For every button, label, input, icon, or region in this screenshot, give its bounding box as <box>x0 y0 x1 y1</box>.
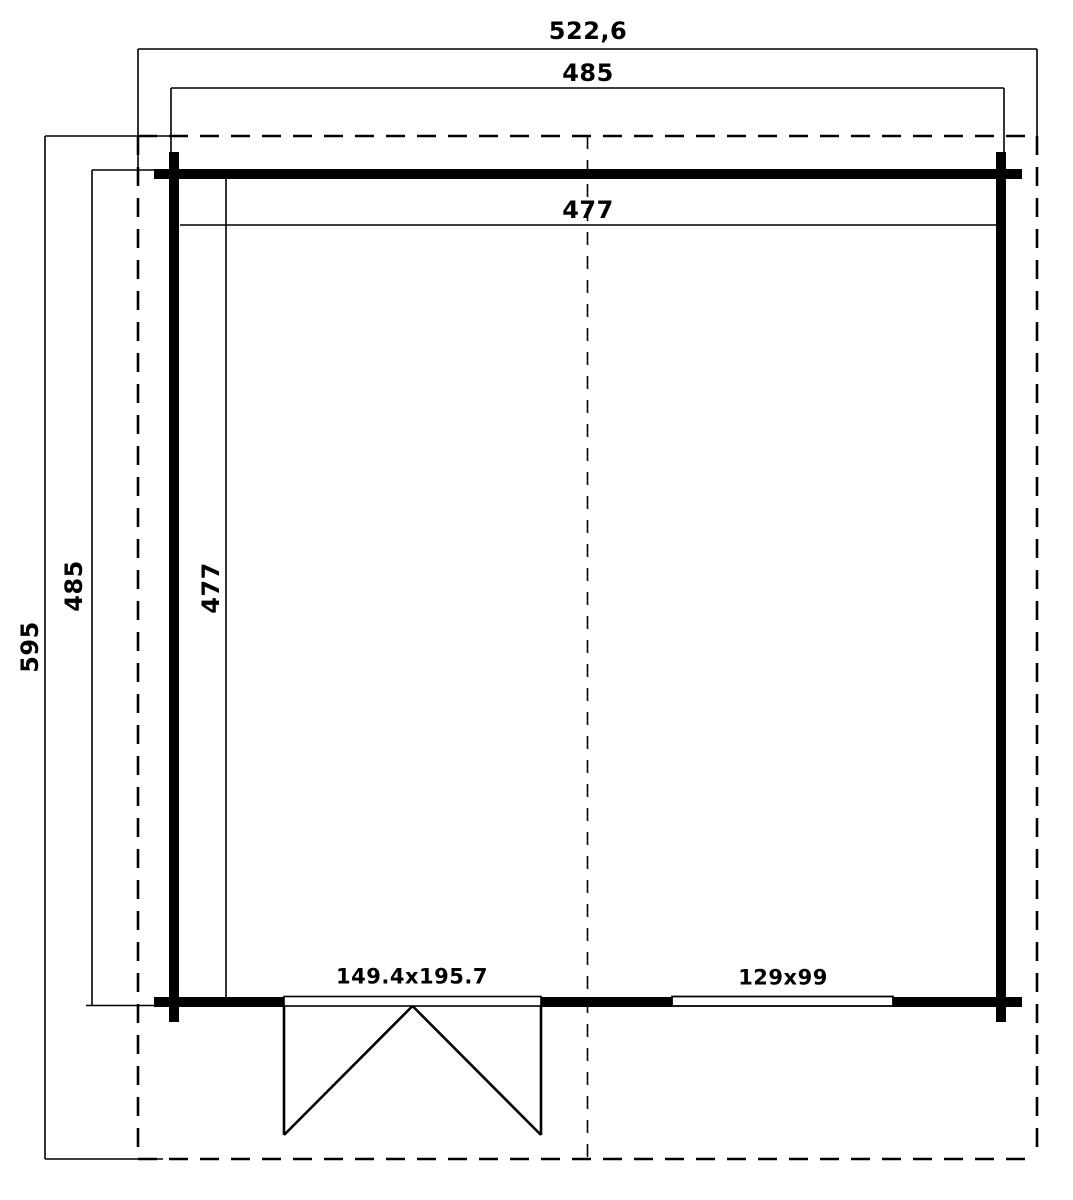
dimension-lines <box>45 49 1037 1159</box>
dim-wall-width-label: 485 <box>562 61 614 85</box>
door-left-leaf-line <box>284 1006 413 1135</box>
dim-roof-width-label: 522,6 <box>549 19 627 43</box>
window-size-label: 129x99 <box>738 968 828 989</box>
door-swing <box>284 1006 541 1135</box>
window-frame <box>672 997 893 1007</box>
door-threshold <box>284 997 541 1007</box>
dim-interior-depth-label: 477 <box>199 562 223 614</box>
dim-wall-depth-label: 485 <box>62 560 86 612</box>
dim-interior-width-label: 477 <box>562 198 614 222</box>
dim-roof-depth-label: 595 <box>18 621 42 673</box>
door-right-leaf-line <box>413 1006 542 1135</box>
door-size-label: 149.4x195.7 <box>336 967 488 988</box>
floor-plan-drawing: 522,6 485 477 595 485 477 149.4x195.7 12… <box>0 0 1073 1200</box>
floor-plan-canvas <box>0 0 1073 1200</box>
